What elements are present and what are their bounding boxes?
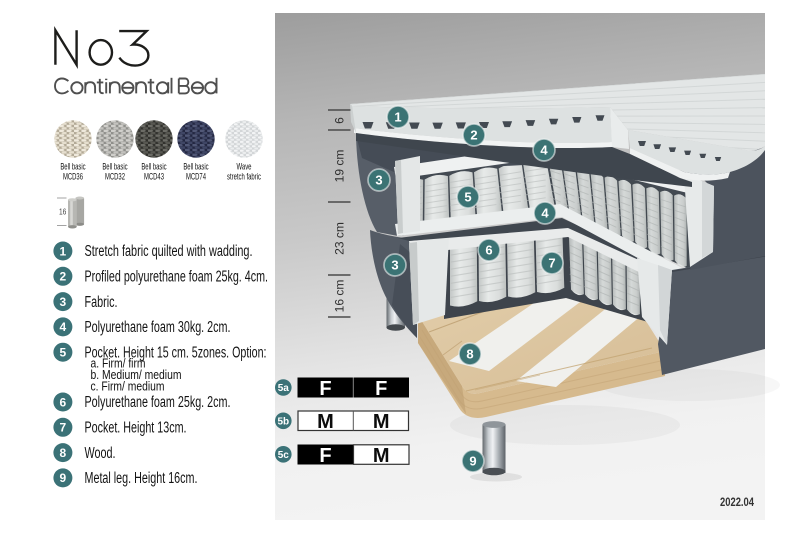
svg-text:stretch fabric: stretch fabric — [227, 172, 261, 183]
svg-text:5: 5 — [464, 190, 471, 205]
svg-text:F: F — [319, 445, 331, 467]
svg-text:Polyurethane foam 25kg. 2cm.: Polyurethane foam 25kg. 2cm. — [85, 394, 231, 411]
svg-text:5a: 5a — [278, 383, 290, 394]
svg-text:9: 9 — [469, 454, 476, 469]
svg-text:6: 6 — [485, 243, 492, 258]
svg-text:19 cm: 19 cm — [333, 150, 347, 183]
svg-text:MCD74: MCD74 — [186, 172, 206, 183]
svg-text:Pocket. Height 13cm.: Pocket. Height 13cm. — [85, 420, 187, 437]
svg-text:2022.04: 2022.04 — [720, 497, 754, 509]
svg-text:4: 4 — [540, 143, 548, 158]
svg-text:6: 6 — [333, 117, 347, 124]
svg-text:3: 3 — [391, 258, 398, 273]
svg-text:1: 1 — [394, 110, 401, 125]
svg-text:8: 8 — [466, 347, 473, 362]
svg-text:MCD43: MCD43 — [144, 172, 164, 183]
svg-text:Profiled polyurethane foam 25k: Profiled polyurethane foam 25kg. 4cm. — [85, 269, 269, 286]
svg-text:M: M — [373, 445, 390, 467]
svg-text:16: 16 — [59, 208, 67, 217]
svg-text:F: F — [319, 378, 331, 400]
svg-text:5: 5 — [60, 346, 67, 360]
svg-text:Polyurethane foam 30kg. 2cm.: Polyurethane foam 30kg. 2cm. — [85, 319, 231, 336]
svg-text:3: 3 — [60, 295, 67, 309]
svg-text:Wood.: Wood. — [85, 445, 116, 462]
svg-text:5c: 5c — [278, 450, 290, 461]
svg-text:Fabric.: Fabric. — [85, 294, 118, 311]
svg-text:7: 7 — [548, 256, 555, 271]
svg-text:6: 6 — [60, 395, 67, 409]
svg-text:2: 2 — [60, 270, 67, 284]
svg-text:9: 9 — [60, 471, 67, 485]
svg-text:M: M — [317, 411, 334, 433]
svg-text:23 cm: 23 cm — [333, 222, 347, 255]
svg-text:5b: 5b — [277, 416, 289, 427]
svg-text:3: 3 — [375, 173, 382, 188]
svg-text:1: 1 — [60, 244, 67, 258]
svg-text:M: M — [373, 411, 390, 433]
svg-text:c. Firm/ medium: c. Firm/ medium — [91, 379, 165, 394]
svg-text:4: 4 — [60, 320, 67, 334]
svg-text:MCD36: MCD36 — [63, 172, 83, 183]
svg-text:4: 4 — [541, 206, 549, 221]
svg-text:7: 7 — [60, 421, 67, 435]
svg-text:Stretch fabric quilted with wa: Stretch fabric quilted with wadding. — [85, 243, 253, 260]
svg-text:MCD32: MCD32 — [105, 172, 125, 183]
svg-text:F: F — [375, 378, 387, 400]
svg-text:8: 8 — [60, 446, 67, 460]
svg-text:2: 2 — [470, 128, 477, 143]
svg-text:16 cm: 16 cm — [333, 280, 347, 313]
svg-text:Metal leg. Height 16cm.: Metal leg. Height 16cm. — [85, 470, 198, 487]
